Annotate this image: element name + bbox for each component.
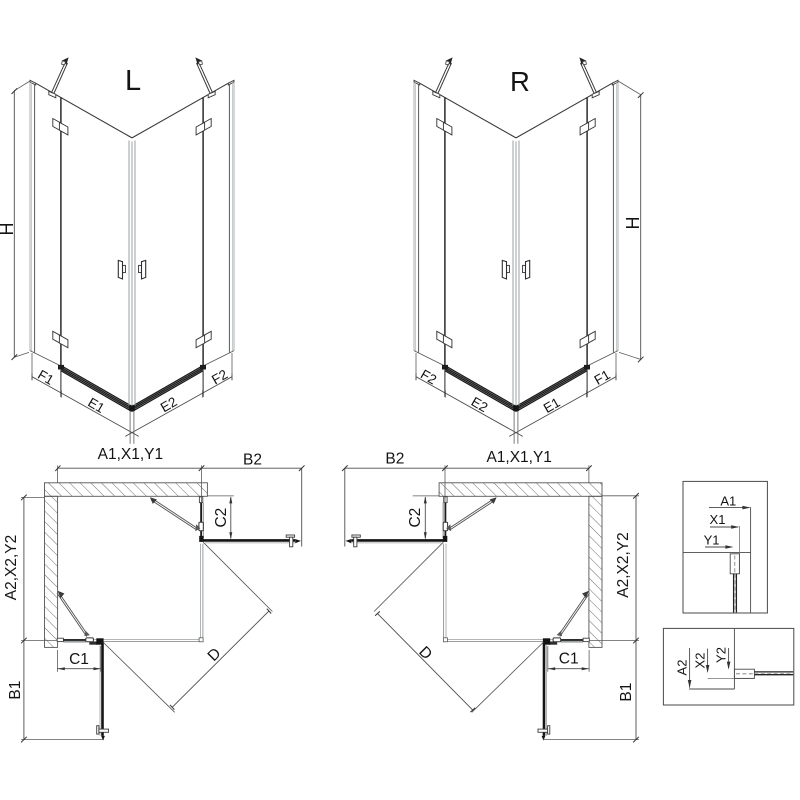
svg-text:R: R bbox=[510, 66, 530, 97]
svg-text:Y2: Y2 bbox=[714, 647, 729, 663]
svg-text:L: L bbox=[125, 65, 141, 97]
svg-text:C2: C2 bbox=[407, 508, 424, 528]
svg-text:X2: X2 bbox=[693, 653, 708, 669]
svg-text:H: H bbox=[623, 217, 643, 230]
svg-text:H: H bbox=[0, 223, 17, 236]
svg-text:A1: A1 bbox=[720, 494, 736, 509]
svg-text:A2,X2,Y2: A2,X2,Y2 bbox=[3, 535, 20, 601]
svg-text:Y1: Y1 bbox=[704, 533, 720, 548]
svg-text:B2: B2 bbox=[385, 451, 404, 468]
svg-text:C1: C1 bbox=[559, 651, 579, 668]
svg-text:B1: B1 bbox=[618, 683, 635, 702]
svg-text:A1,X1,Y1: A1,X1,Y1 bbox=[486, 449, 552, 466]
svg-text:B1: B1 bbox=[7, 681, 24, 700]
svg-text:C1: C1 bbox=[69, 651, 89, 668]
svg-text:C2: C2 bbox=[213, 508, 230, 528]
svg-text:A1,X1,Y1: A1,X1,Y1 bbox=[98, 446, 164, 463]
svg-text:B2: B2 bbox=[243, 452, 262, 469]
svg-text:A2,X2,Y2: A2,X2,Y2 bbox=[615, 532, 632, 598]
svg-text:X1: X1 bbox=[710, 512, 726, 527]
svg-text:A2: A2 bbox=[675, 660, 690, 676]
